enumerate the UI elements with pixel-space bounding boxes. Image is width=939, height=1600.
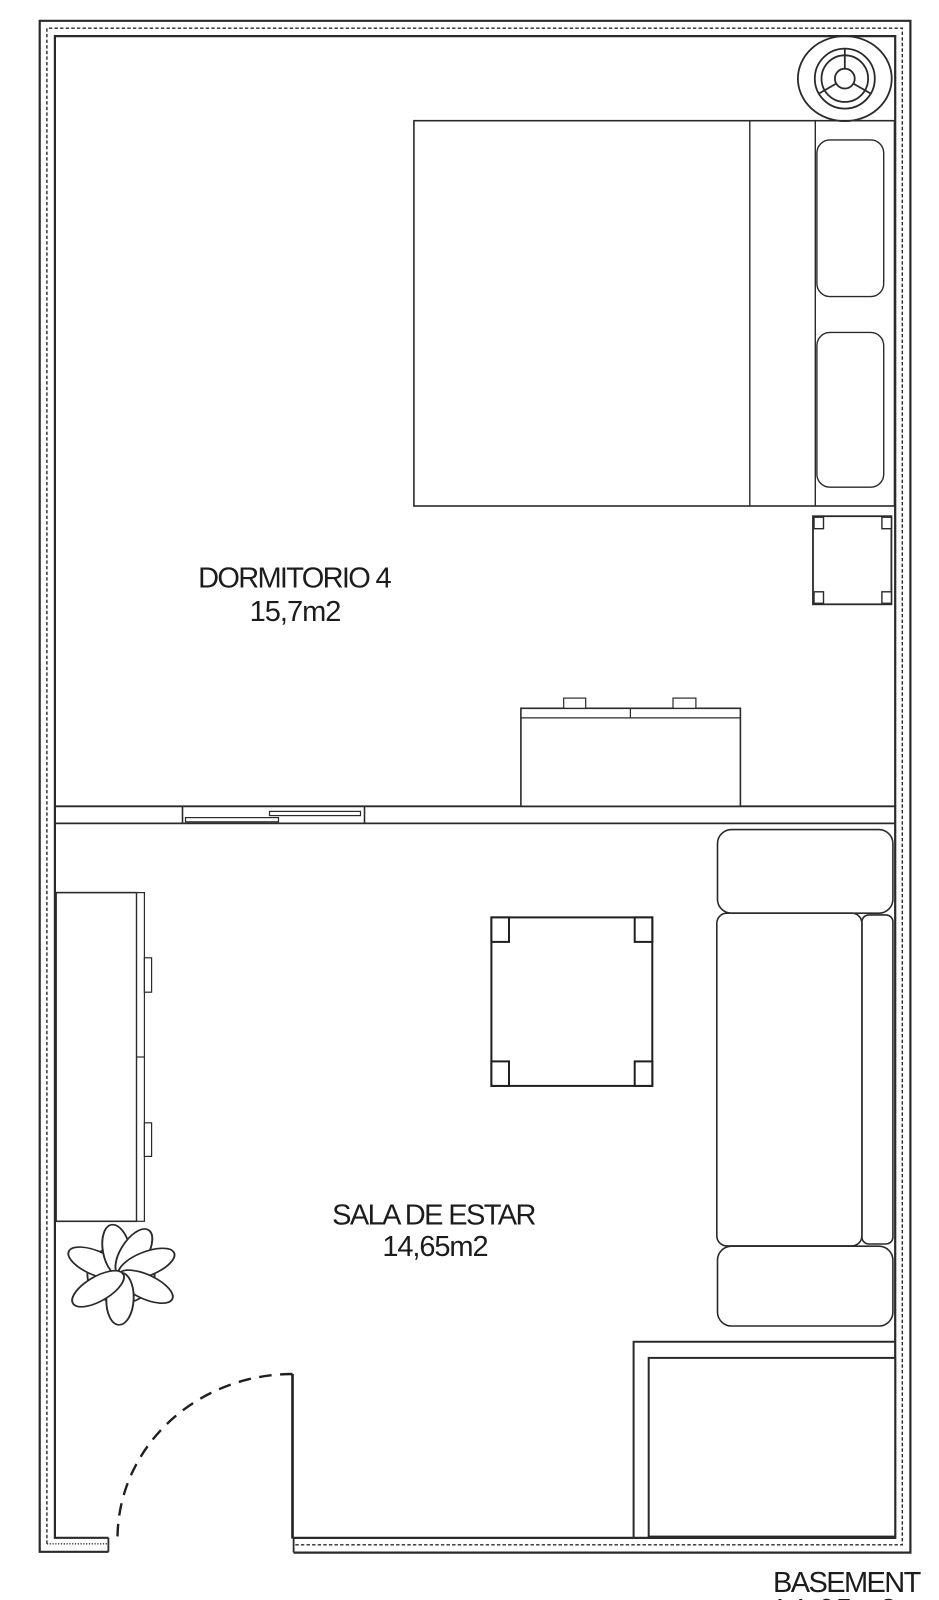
svg-text:14,65m2: 14,65m2 [772,1594,899,1600]
svg-text:DORMITORIO 4: DORMITORIO 4 [198,562,391,594]
svg-text:15,7m2: 15,7m2 [250,596,341,628]
svg-text:14,65m2: 14,65m2 [382,1231,487,1263]
svg-text:SALA DE ESTAR: SALA DE ESTAR [332,1200,535,1232]
